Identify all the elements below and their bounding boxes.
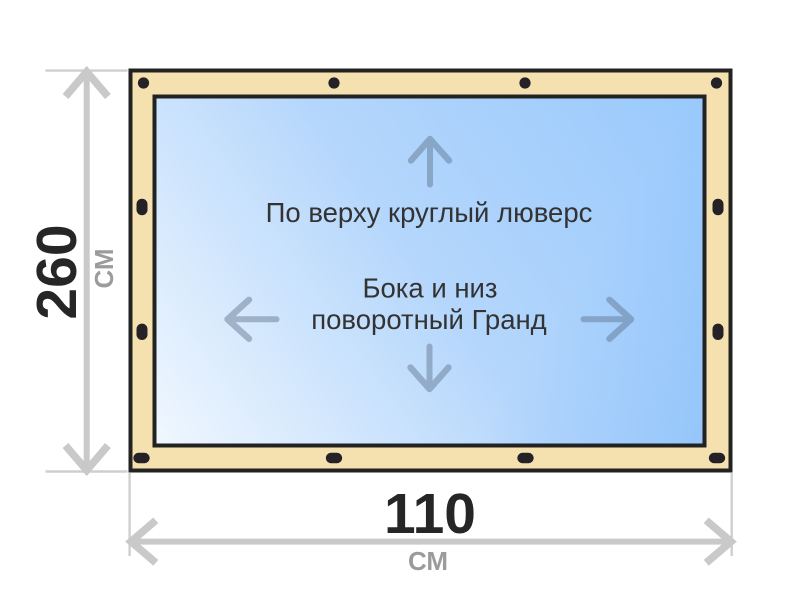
svg-text:По верху круглый люверс: По верху круглый люверс	[266, 197, 593, 228]
svg-text:СМ: СМ	[408, 546, 448, 576]
svg-text:Бока и низ: Бока и низ	[362, 272, 497, 303]
svg-text:260: 260	[25, 224, 89, 319]
svg-text:поворотный Гранд: поворотный Гранд	[311, 304, 546, 335]
svg-text:110: 110	[384, 482, 476, 546]
svg-text:СМ: СМ	[89, 248, 119, 288]
